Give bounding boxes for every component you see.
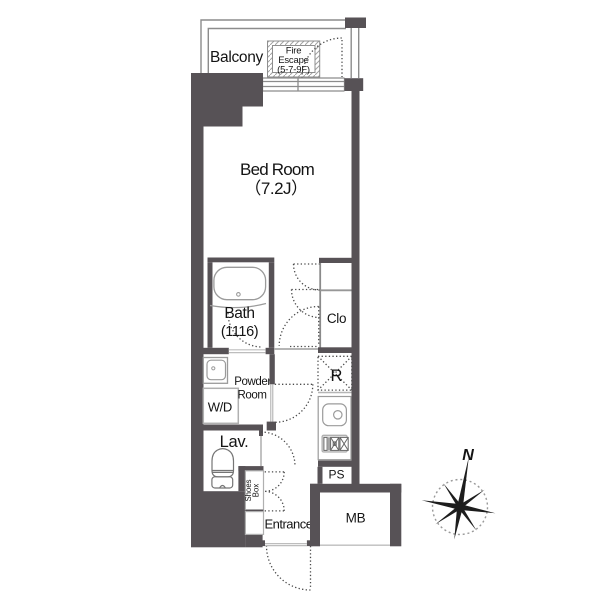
svg-text:Entrance: Entrance [264,517,312,532]
svg-text:Bed Room: Bed Room [240,160,315,179]
svg-text:（7.2J）: （7.2J） [244,179,307,198]
svg-text:Powder: Powder [234,376,271,388]
svg-text:N: N [462,447,474,464]
svg-text:Bath: Bath [224,305,254,322]
svg-text:Clo: Clo [327,311,346,326]
svg-text:MB: MB [346,511,366,526]
svg-text:(1116): (1116) [221,324,258,340]
svg-text:W/D: W/D [208,400,232,415]
svg-text:R: R [331,367,343,385]
svg-text:Room: Room [237,390,266,402]
svg-text:Box: Box [251,484,260,498]
svg-text:PS: PS [328,468,344,482]
svg-text:(5-7-9F): (5-7-9F) [277,65,310,76]
svg-text:Balcony: Balcony [210,49,264,66]
